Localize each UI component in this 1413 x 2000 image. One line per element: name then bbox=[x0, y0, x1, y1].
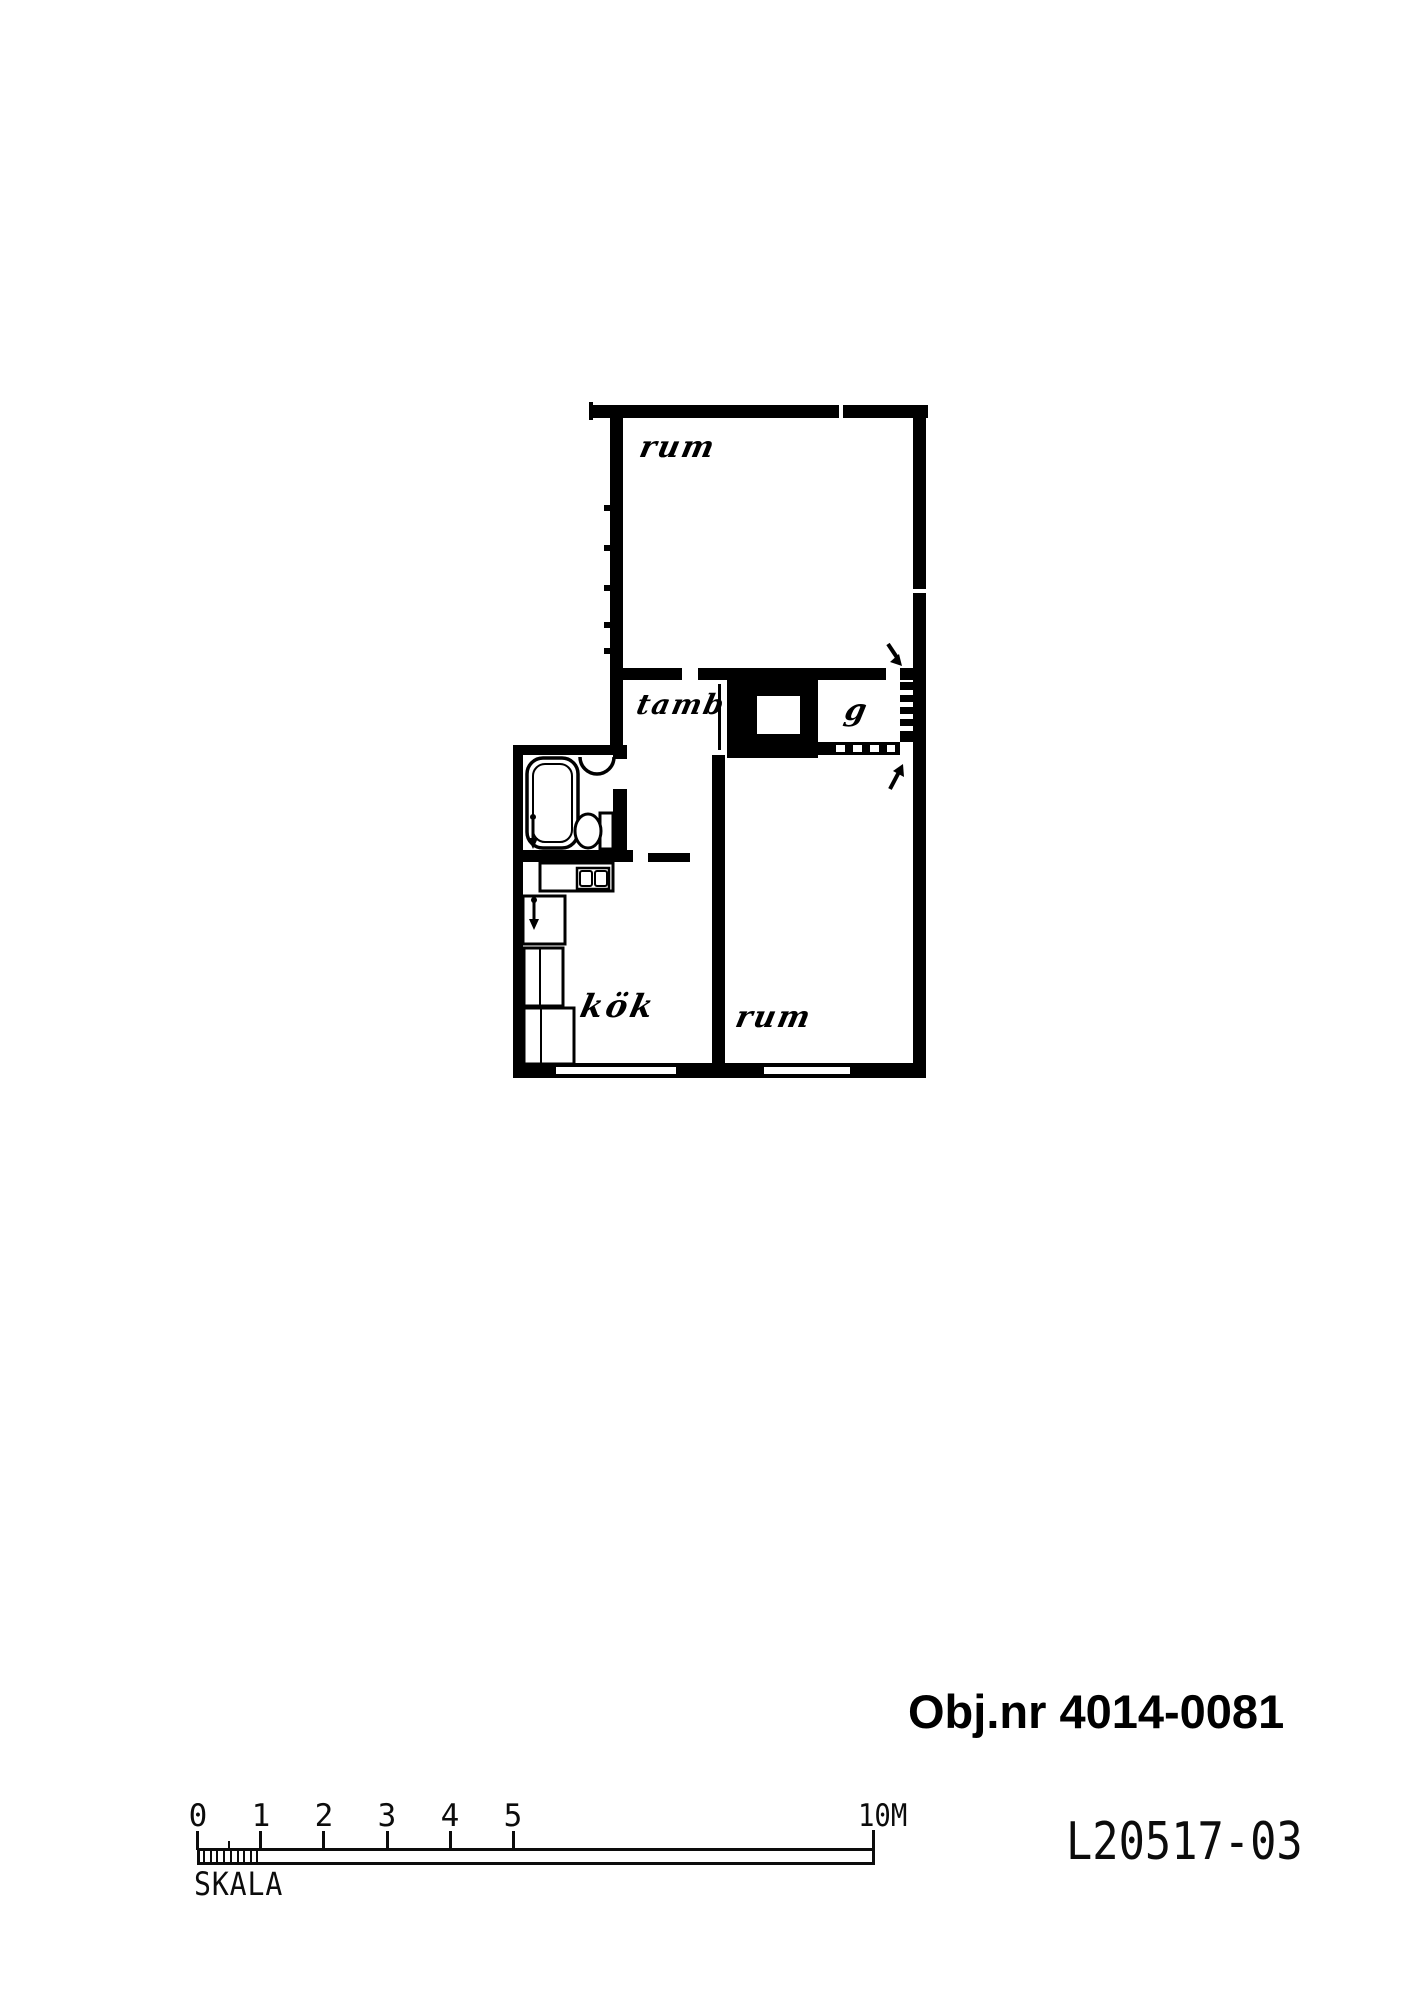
door-hatch bbox=[900, 726, 913, 731]
scale-title: SKALA bbox=[194, 1868, 283, 1900]
door-hatch bbox=[853, 745, 862, 752]
scale-hatch bbox=[203, 1848, 205, 1865]
cabinet bbox=[524, 948, 563, 1006]
door-hatch bbox=[900, 702, 913, 707]
window-kitchen bbox=[556, 1067, 676, 1074]
door-hatch bbox=[887, 745, 895, 752]
scale-hatch bbox=[243, 1848, 245, 1865]
wall-left-upper bbox=[610, 405, 623, 755]
wall-nub bbox=[604, 585, 610, 591]
wall-nub bbox=[604, 648, 610, 654]
wall-hall-bottom bbox=[648, 853, 690, 862]
wall-toproom-bottom bbox=[610, 668, 682, 680]
drain-dot bbox=[530, 814, 536, 820]
scale-bar-left-cap bbox=[197, 1848, 200, 1865]
wall-divider bbox=[712, 755, 725, 1078]
door-hatch bbox=[870, 745, 879, 752]
scale-end-tick bbox=[872, 1830, 875, 1865]
door-gap-bathroom bbox=[613, 759, 627, 789]
wall-joint-right bbox=[913, 589, 926, 593]
wall-right bbox=[913, 405, 926, 1078]
elevator-cutout bbox=[757, 696, 800, 734]
door-hatch bbox=[836, 745, 845, 752]
bathtub-inner bbox=[533, 764, 572, 842]
scale-hatch bbox=[210, 1848, 212, 1865]
scale-tick-label-4: 4 bbox=[432, 1801, 468, 1832]
room-label-top-rum: rum bbox=[637, 433, 719, 463]
room-label-bottom-rum: rum bbox=[733, 1003, 815, 1033]
wall-toproom-bottom bbox=[900, 668, 913, 680]
scale-hatch bbox=[230, 1848, 232, 1865]
scale-tick-label-5: 5 bbox=[495, 1801, 531, 1832]
wall-top-endcap bbox=[589, 402, 593, 420]
scale-tick-label-2: 2 bbox=[306, 1801, 342, 1832]
scale-hatch bbox=[250, 1848, 252, 1865]
scale-hatch bbox=[256, 1848, 258, 1865]
wall-bathroom-top bbox=[513, 745, 627, 755]
wall-toproom-bottom bbox=[698, 668, 727, 680]
wall-nub bbox=[604, 545, 610, 551]
bathroom-fixtures bbox=[527, 757, 614, 849]
washbasin-icon bbox=[580, 757, 614, 774]
room-label-kitchen: kök bbox=[578, 990, 659, 1022]
stairwell-shaft bbox=[727, 672, 818, 758]
entry-arrow-icon bbox=[890, 772, 899, 789]
scale-tick-label-0: 0 bbox=[180, 1801, 216, 1832]
sink-basin bbox=[580, 871, 592, 886]
wall-joint-top bbox=[839, 404, 843, 419]
wall-nub bbox=[604, 505, 610, 511]
scale-tick-label-3: 3 bbox=[369, 1801, 405, 1832]
drawing-number-text: L20517-03 bbox=[1066, 1816, 1303, 1868]
door-hatch bbox=[900, 690, 913, 695]
cabinet bbox=[524, 1008, 574, 1064]
wall-top bbox=[592, 405, 928, 418]
door-hatch bbox=[900, 714, 913, 719]
fridge-icon bbox=[523, 896, 565, 944]
window-bottom-room bbox=[764, 1067, 850, 1074]
sink-basin bbox=[595, 871, 607, 886]
scale-end-label-10m: 10M bbox=[858, 1801, 907, 1832]
scale-half-tick bbox=[228, 1841, 230, 1850]
scale-bar-bottom-line bbox=[197, 1862, 875, 1865]
scale-hatch bbox=[216, 1848, 218, 1865]
scale-bar bbox=[196, 1830, 875, 1865]
room-label-tamb: tamb bbox=[634, 691, 728, 719]
toilet-bowl-icon bbox=[575, 814, 601, 848]
scale-bar-top-line bbox=[197, 1848, 875, 1851]
scale-hatch bbox=[223, 1848, 225, 1865]
scale-hatch bbox=[237, 1848, 239, 1865]
object-number-text: Obj.nr 4014-0081 bbox=[908, 1684, 1284, 1739]
fridge-arrow-dot bbox=[531, 897, 537, 903]
wall-nub bbox=[604, 622, 610, 628]
scale-tick-label-1: 1 bbox=[243, 1801, 279, 1832]
kitchen-fixtures bbox=[523, 863, 613, 1064]
scanned-floor-plan-page: rum tamb g kök rum Obj.nr 4014-0081 0 1 … bbox=[0, 0, 1413, 2000]
